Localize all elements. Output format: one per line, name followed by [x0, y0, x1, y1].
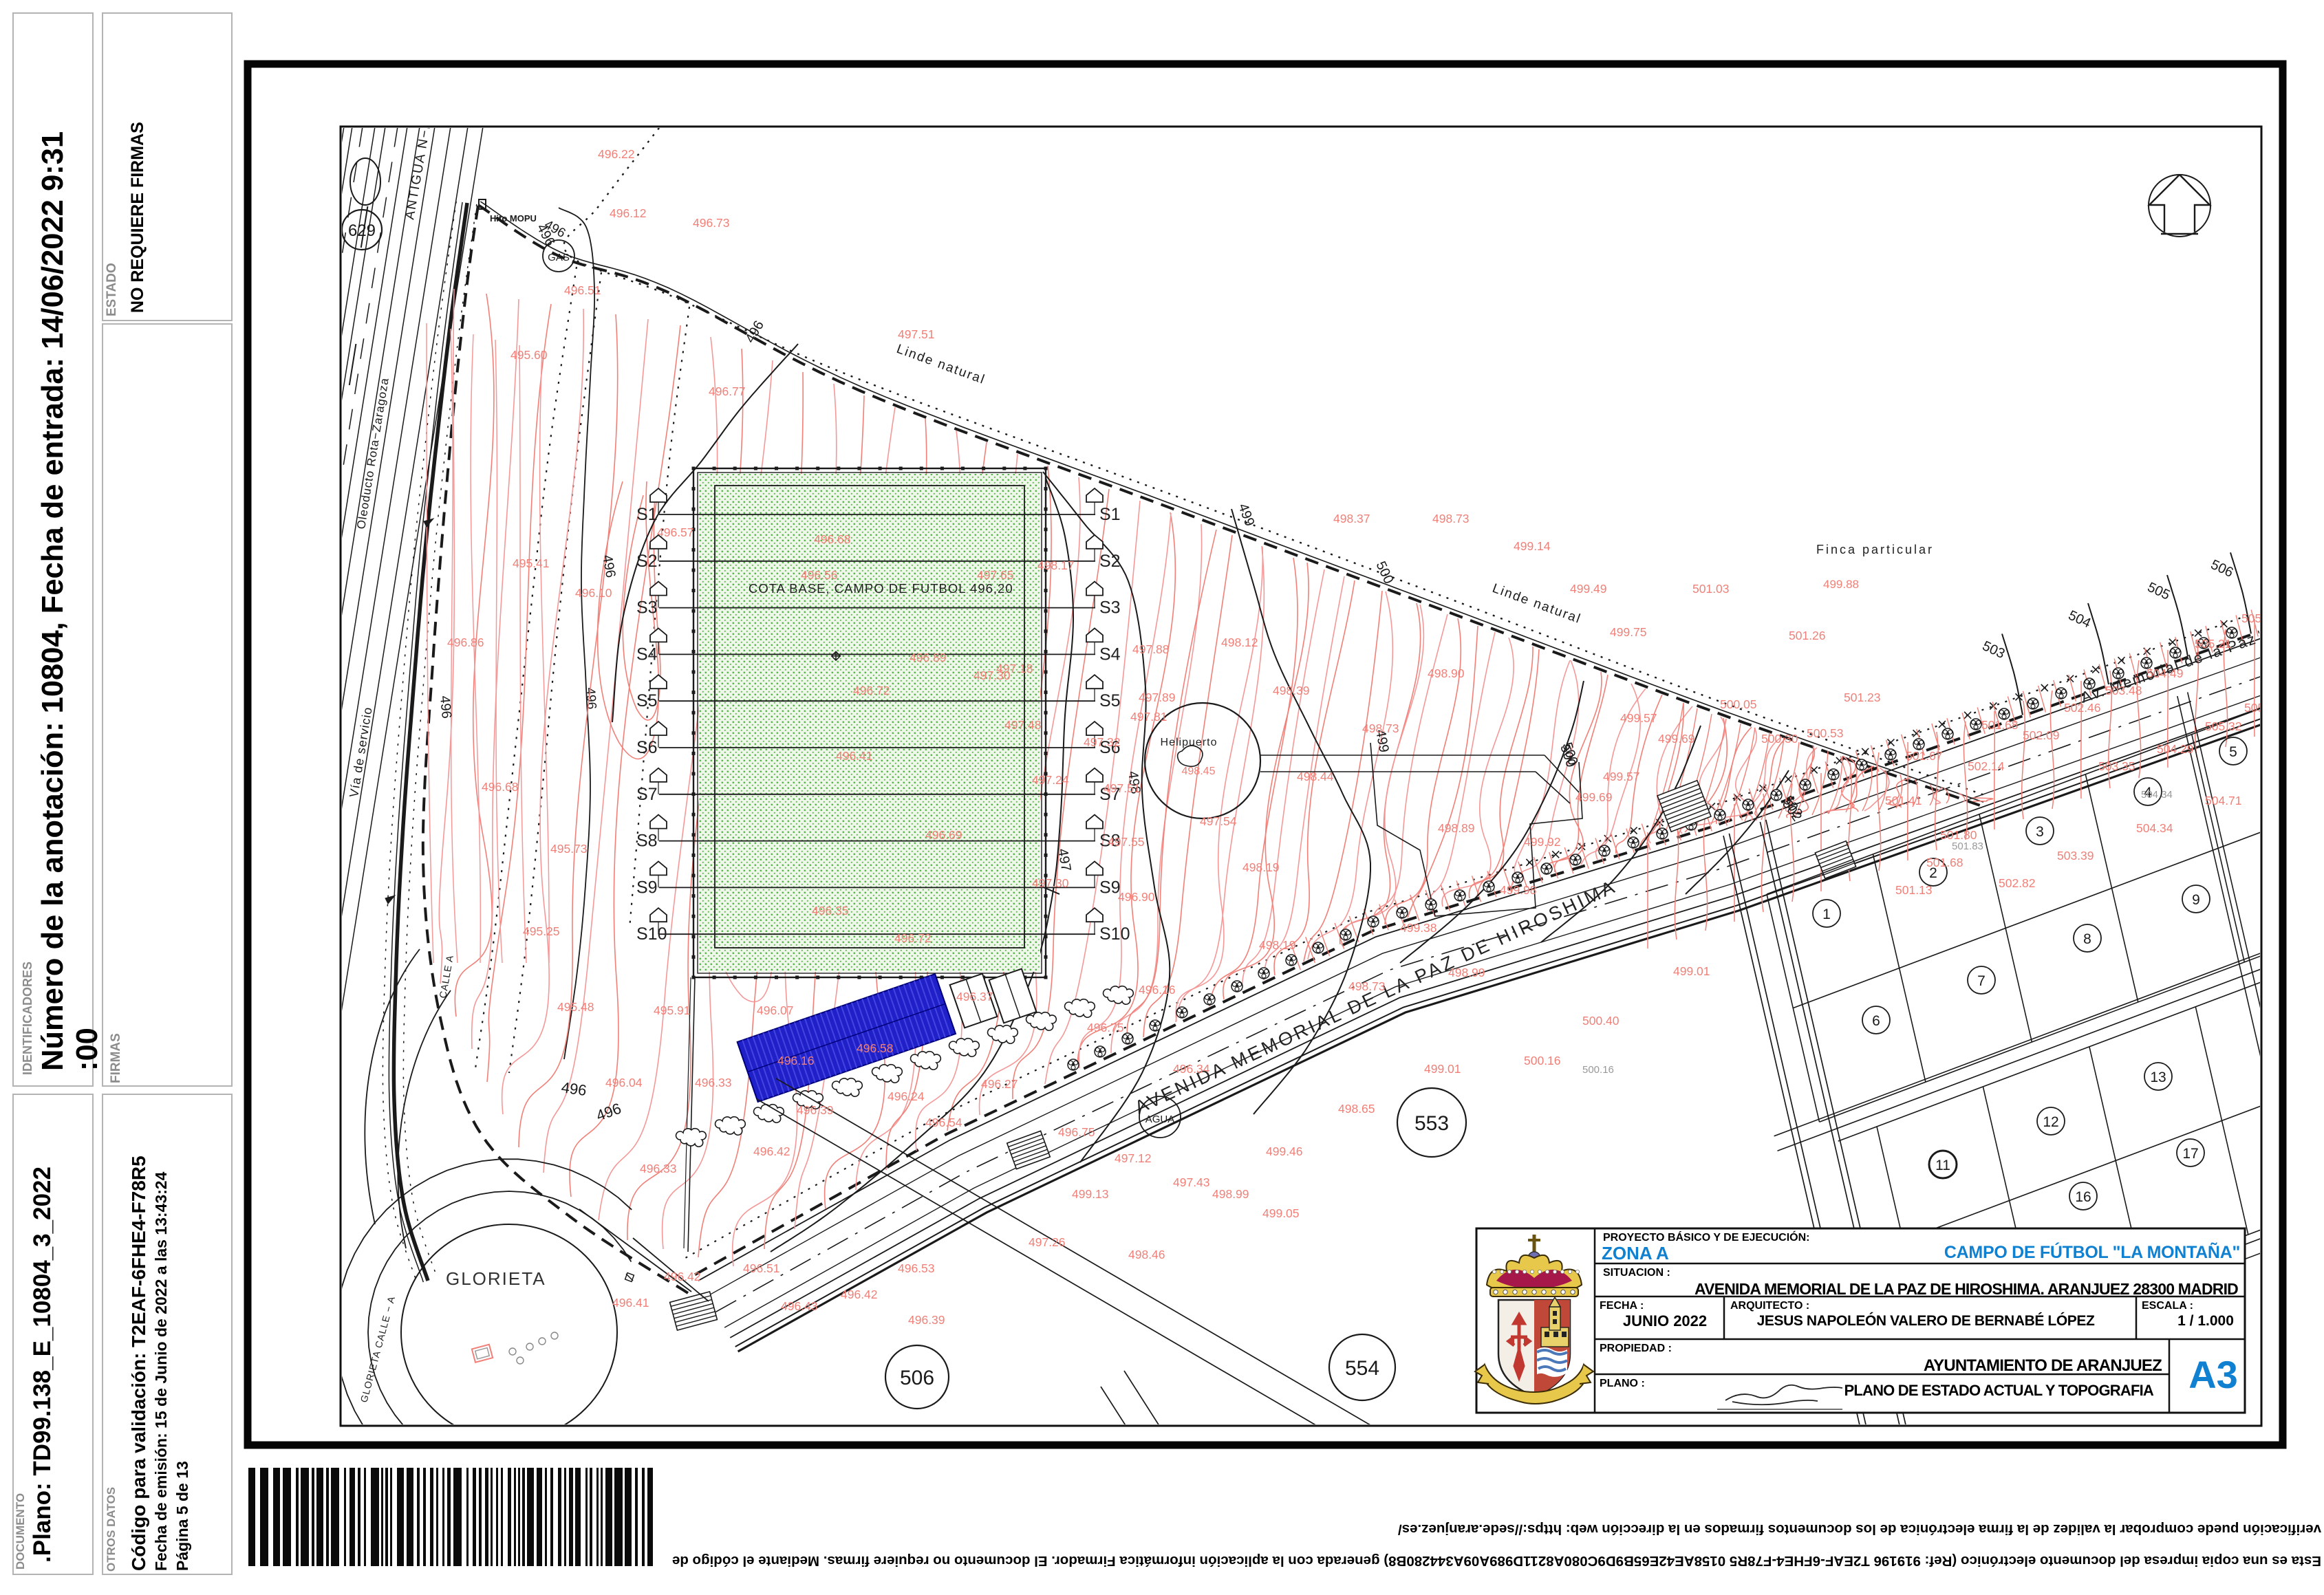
svg-text:505.32: 505.32 — [2205, 719, 2242, 733]
svg-text:S8: S8 — [636, 832, 658, 851]
svg-text:S7: S7 — [636, 785, 658, 804]
svg-text:498.19: 498.19 — [1259, 938, 1296, 952]
svg-text:498.90: 498.90 — [1428, 666, 1465, 680]
svg-text:498.73: 498.73 — [1348, 979, 1386, 993]
svg-text:503.39: 503.39 — [2057, 849, 2094, 862]
svg-text:5: 5 — [2229, 744, 2237, 760]
svg-text:9: 9 — [2192, 892, 2200, 908]
svg-text:499.57: 499.57 — [1620, 711, 1657, 725]
svg-text:GAS: GAS — [548, 252, 570, 263]
svg-text:504.34: 504.34 — [2136, 821, 2173, 835]
svg-text:495.91: 495.91 — [654, 1003, 691, 1017]
svg-text:502.82: 502.82 — [1999, 876, 2036, 890]
svg-text:498.45: 498.45 — [1182, 766, 1216, 777]
svg-text:S4: S4 — [636, 644, 658, 664]
svg-text:501.67: 501.67 — [1906, 749, 1943, 763]
svg-text:504.71: 504.71 — [2205, 794, 2242, 807]
svg-text:498.73: 498.73 — [1432, 512, 1470, 525]
svg-text:496.58: 496.58 — [857, 1041, 894, 1055]
svg-text:496.34: 496.34 — [1173, 1062, 1210, 1076]
svg-text:498.99: 498.99 — [1448, 966, 1485, 979]
svg-text:496.42: 496.42 — [753, 1144, 790, 1158]
svg-text:496.42: 496.42 — [664, 1270, 701, 1283]
svg-text:499.14: 499.14 — [1514, 539, 1551, 553]
svg-text:496.75: 496.75 — [1087, 1021, 1124, 1034]
svg-text:505.21: 505.21 — [2195, 637, 2232, 651]
svg-text:498.17: 498.17 — [1037, 558, 1075, 572]
svg-text:497.55: 497.55 — [1108, 835, 1145, 849]
svg-text:497.88: 497.88 — [1132, 642, 1170, 656]
svg-text:495.60: 495.60 — [510, 348, 548, 362]
svg-text:497.51: 497.51 — [1104, 781, 1141, 795]
svg-text:503.48: 503.48 — [2105, 684, 2142, 697]
svg-text:496.33: 496.33 — [640, 1162, 677, 1175]
svg-text:S5: S5 — [636, 691, 658, 710]
svg-text:497.30: 497.30 — [973, 669, 1011, 682]
svg-text:496.35: 496.35 — [812, 904, 849, 918]
svg-text:498.65: 498.65 — [1338, 1102, 1375, 1116]
svg-text:497.30: 497.30 — [1032, 876, 1069, 890]
svg-text:496.54: 496.54 — [925, 1116, 962, 1129]
svg-text:498.19: 498.19 — [1242, 860, 1280, 874]
svg-text:499.05: 499.05 — [1262, 1206, 1300, 1220]
svg-text:500.53: 500.53 — [1807, 726, 1844, 740]
svg-text:497.12: 497.12 — [1115, 1151, 1152, 1165]
svg-text:496.16: 496.16 — [777, 1054, 815, 1067]
svg-text:496.77: 496.77 — [709, 384, 746, 398]
svg-text:496.22: 496.22 — [598, 147, 635, 161]
svg-text:496.41: 496.41 — [836, 749, 873, 763]
svg-text:S4: S4 — [1099, 644, 1121, 664]
svg-text:S9: S9 — [1099, 878, 1121, 897]
svg-text:496.51: 496.51 — [743, 1261, 780, 1275]
svg-text:502.14: 502.14 — [1968, 759, 2005, 773]
svg-text:Finca particular: Finca particular — [1816, 543, 1934, 556]
svg-text:497.54: 497.54 — [1200, 814, 1237, 828]
svg-text:496.37: 496.37 — [956, 990, 993, 1003]
svg-text:S10: S10 — [1099, 924, 1130, 944]
svg-text:501.13: 501.13 — [1895, 883, 1933, 897]
svg-text:499.69: 499.69 — [1658, 732, 1695, 746]
svg-text:496.41: 496.41 — [612, 1296, 649, 1310]
svg-text:503.35: 503.35 — [2098, 759, 2135, 773]
svg-text:495.25: 495.25 — [523, 924, 560, 938]
svg-text:496.39: 496.39 — [908, 1313, 945, 1327]
svg-text:499.69: 499.69 — [1575, 790, 1613, 804]
svg-text:496.53: 496.53 — [898, 1261, 935, 1275]
svg-text:500.05: 500.05 — [1720, 697, 1757, 711]
svg-text:501.26: 501.26 — [1789, 629, 1826, 642]
svg-text:499.13: 499.13 — [1072, 1187, 1109, 1201]
svg-text:496.51: 496.51 — [564, 283, 601, 297]
svg-text:498.89: 498.89 — [1438, 821, 1475, 835]
svg-text:496.90: 496.90 — [1118, 890, 1155, 904]
svg-text:501.80: 501.80 — [1940, 828, 1977, 842]
svg-text:COTA BASE, CAMPO DE FUTBOL: COTA BASE, CAMPO DE FUTBOL 496,20 — [749, 581, 1013, 596]
svg-text:3: 3 — [2036, 824, 2044, 840]
svg-text:497.48: 497.48 — [1004, 718, 1042, 732]
svg-text:1: 1 — [1822, 907, 1831, 922]
svg-text:499.01: 499.01 — [1673, 964, 1710, 978]
svg-text:497.81: 497.81 — [1130, 710, 1168, 724]
svg-text:13: 13 — [2150, 1070, 2166, 1085]
svg-text:506: 506 — [900, 1367, 934, 1389]
svg-text:7: 7 — [1977, 973, 1986, 989]
svg-text:497.26: 497.26 — [1029, 1235, 1066, 1249]
svg-text:502.46: 502.46 — [2064, 701, 2101, 715]
svg-text:496.10: 496.10 — [575, 586, 612, 600]
svg-text:GLORIETA: GLORIETA — [446, 1268, 546, 1289]
svg-text:553: 553 — [1414, 1112, 1449, 1135]
svg-text:Helipuerto: Helipuerto — [1161, 737, 1218, 748]
svg-text:498.39: 498.39 — [1273, 684, 1310, 697]
svg-text:S5: S5 — [1099, 691, 1121, 710]
svg-text:496.57: 496.57 — [657, 525, 694, 539]
svg-text:498.12: 498.12 — [1221, 636, 1258, 649]
svg-text:499.75: 499.75 — [1610, 625, 1647, 639]
svg-text:496.24: 496.24 — [887, 1089, 925, 1103]
svg-text:496.75: 496.75 — [1058, 1125, 1095, 1139]
svg-text:499.57: 499.57 — [1603, 770, 1640, 783]
svg-text:500.30: 500.30 — [1761, 732, 1798, 746]
svg-text:496.39: 496.39 — [797, 1103, 834, 1117]
svg-text:S10: S10 — [636, 924, 667, 944]
svg-text:S6: S6 — [636, 738, 658, 757]
svg-text:499.01: 499.01 — [1424, 1062, 1461, 1076]
svg-text:S2: S2 — [1099, 552, 1121, 571]
svg-text:500.16: 500.16 — [1582, 1064, 1614, 1076]
svg-text:499.88: 499.88 — [1823, 578, 1859, 591]
svg-text:499.98: 499.98 — [1500, 883, 1537, 897]
svg-text:496.12: 496.12 — [610, 206, 647, 220]
svg-text:629: 629 — [348, 221, 376, 240]
svg-text:496.07: 496.07 — [757, 1003, 794, 1017]
svg-text:504.29: 504.29 — [2157, 742, 2194, 756]
svg-text:S3: S3 — [1099, 598, 1121, 618]
svg-text:496.73: 496.73 — [693, 216, 730, 230]
svg-text:496.27: 496.27 — [981, 1077, 1018, 1091]
svg-text:496.56: 496.56 — [801, 568, 838, 582]
svg-text:496.04: 496.04 — [605, 1076, 643, 1089]
svg-text:496: 496 — [437, 695, 454, 719]
svg-text:502.09: 502.09 — [2023, 728, 2060, 742]
svg-text:AGUA: AGUA — [1145, 1114, 1175, 1125]
svg-text:500.40: 500.40 — [1582, 1014, 1620, 1028]
svg-text:499.46: 499.46 — [1266, 1144, 1303, 1158]
svg-text:495.41: 495.41 — [513, 556, 550, 570]
svg-text:12: 12 — [2043, 1114, 2058, 1130]
svg-text:501.41: 501.41 — [1885, 794, 1922, 807]
svg-text:497.32: 497.32 — [1084, 735, 1121, 749]
svg-text:504.49: 504.49 — [2147, 666, 2184, 680]
svg-text:496.16: 496.16 — [1139, 983, 1176, 997]
svg-text:496.89: 496.89 — [910, 651, 947, 664]
svg-text:554: 554 — [1345, 1357, 1379, 1380]
svg-text:495.73: 495.73 — [550, 842, 588, 856]
svg-text:501.83: 501.83 — [1952, 840, 1983, 852]
svg-text:498.37: 498.37 — [1333, 512, 1370, 525]
svg-text:500.16: 500.16 — [1524, 1054, 1561, 1067]
svg-text:S1: S1 — [1099, 505, 1121, 524]
svg-text:499.38: 499.38 — [1400, 921, 1437, 935]
svg-text:499.92: 499.92 — [1524, 835, 1561, 849]
svg-text:496.33: 496.33 — [695, 1076, 732, 1089]
svg-text:497.43: 497.43 — [1173, 1175, 1210, 1189]
svg-text:6: 6 — [1872, 1013, 1880, 1029]
svg-text:501.23: 501.23 — [1844, 691, 1881, 704]
svg-text:497.65: 497.65 — [977, 568, 1014, 582]
svg-text:S3: S3 — [636, 598, 658, 618]
svg-text:496: 496 — [560, 1078, 588, 1099]
svg-text:497.51: 497.51 — [898, 327, 935, 341]
svg-text:496.43: 496.43 — [781, 1299, 818, 1313]
svg-text:498.44: 498.44 — [1297, 770, 1334, 783]
svg-text:17: 17 — [2182, 1146, 2198, 1162]
svg-text:497.89: 497.89 — [1139, 691, 1176, 704]
svg-text:S1: S1 — [636, 505, 658, 524]
svg-text:S9: S9 — [636, 878, 658, 897]
svg-text:501.68: 501.68 — [1926, 856, 1963, 869]
svg-text:499.49: 499.49 — [1570, 582, 1607, 596]
svg-text:496.68: 496.68 — [814, 532, 851, 546]
svg-text:8: 8 — [2083, 931, 2091, 947]
svg-text:501.68: 501.68 — [1981, 718, 2019, 732]
svg-text:496.72: 496.72 — [894, 931, 932, 945]
svg-text:S2: S2 — [636, 552, 658, 571]
svg-text:496.86: 496.86 — [447, 636, 484, 649]
svg-text:504.34: 504.34 — [2141, 789, 2173, 801]
svg-text:498.73: 498.73 — [1362, 721, 1399, 735]
svg-text:501.03: 501.03 — [1692, 582, 1730, 596]
svg-text:496.68: 496.68 — [482, 780, 519, 794]
svg-text:498.46: 498.46 — [1128, 1248, 1165, 1261]
svg-text:496.42: 496.42 — [841, 1288, 878, 1301]
svg-text:498.99: 498.99 — [1212, 1187, 1249, 1201]
svg-text:496: 496 — [583, 687, 599, 710]
svg-text:11: 11 — [1935, 1158, 1950, 1173]
svg-text:496.69: 496.69 — [925, 828, 962, 842]
svg-text:16: 16 — [2075, 1189, 2091, 1205]
svg-text:496.72: 496.72 — [853, 684, 890, 697]
svg-text:495.48: 495.48 — [557, 1000, 594, 1014]
svg-text:497.24: 497.24 — [1032, 773, 1069, 787]
